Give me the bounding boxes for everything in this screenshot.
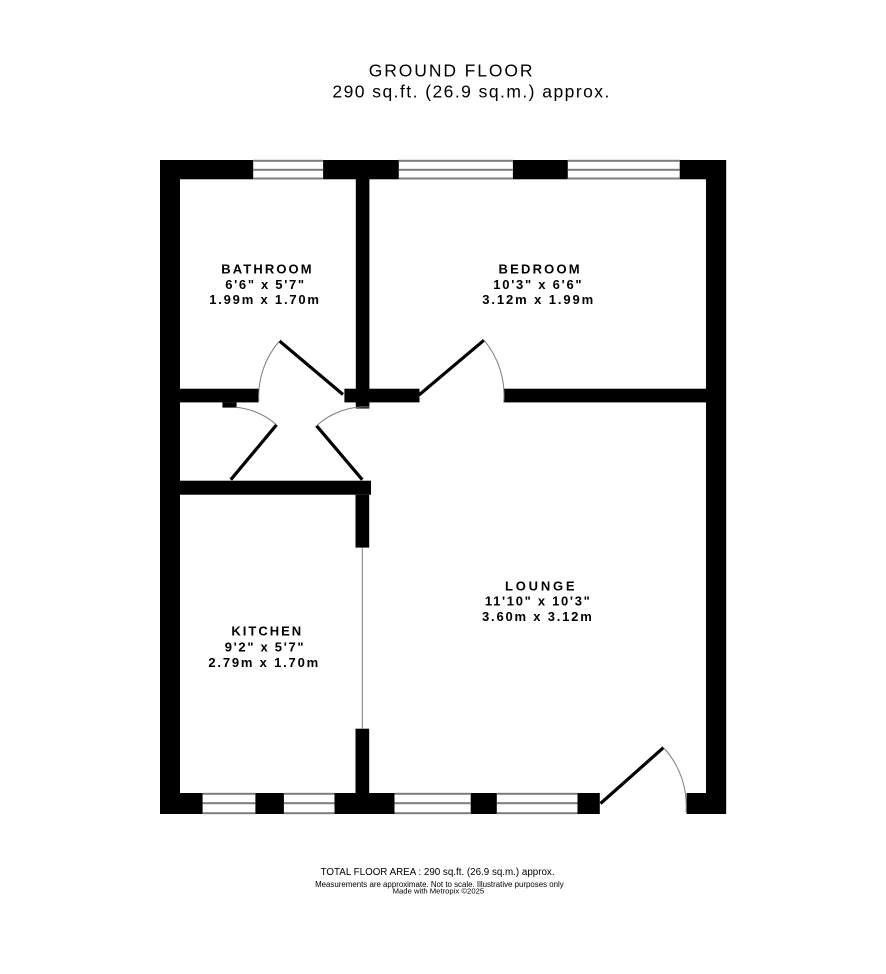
svg-text:BEDROOM: BEDROOM bbox=[499, 261, 582, 276]
svg-text:TOTAL FLOOR AREA : 290 sq.ft.: TOTAL FLOOR AREA : 290 sq.ft. (26.9 sq.m… bbox=[321, 867, 555, 878]
svg-text:BATHROOM: BATHROOM bbox=[221, 261, 313, 276]
svg-text:LOUNGE: LOUNGE bbox=[505, 578, 577, 593]
svg-text:Made with Metropix ©2025: Made with Metropix ©2025 bbox=[393, 887, 485, 896]
svg-text:KITCHEN: KITCHEN bbox=[231, 624, 303, 639]
svg-text:6'6" x 5'7": 6'6" x 5'7" bbox=[225, 277, 306, 292]
svg-text:10'3" x 6'6": 10'3" x 6'6" bbox=[493, 277, 583, 292]
svg-text:GROUND FLOOR: GROUND FLOOR bbox=[369, 61, 535, 81]
svg-text:3.12m x 1.99m: 3.12m x 1.99m bbox=[482, 292, 595, 307]
svg-text:9'2" x 5'7": 9'2" x 5'7" bbox=[225, 639, 306, 654]
svg-text:1.99m x 1.70m: 1.99m x 1.70m bbox=[209, 292, 321, 307]
svg-text:290 sq.ft. (26.9 sq.m.) approx: 290 sq.ft. (26.9 sq.m.) approx. bbox=[332, 81, 610, 101]
svg-text:3.60m x 3.12m: 3.60m x 3.12m bbox=[482, 609, 594, 624]
svg-text:2.79m x 1.70m: 2.79m x 1.70m bbox=[208, 655, 320, 670]
svg-text:11'10" x 10'3": 11'10" x 10'3" bbox=[485, 594, 592, 609]
